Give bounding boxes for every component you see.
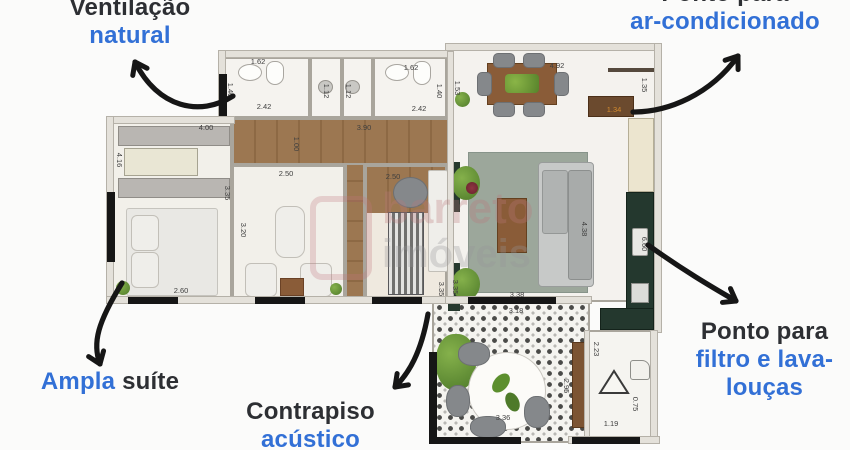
dimension-label: 1.35: [640, 78, 648, 93]
dimension-label: 3.36: [496, 414, 511, 422]
dimension-label: 2.50: [386, 173, 401, 181]
dimension-label: 6.60: [640, 237, 648, 252]
dimension-label: 1.12: [344, 84, 352, 99]
dimension-label: 2.42: [412, 105, 427, 113]
annotation-sink-point-line3: louças: [682, 374, 847, 402]
dimension-label: 1.34: [607, 106, 622, 114]
dimension-label: 1.53: [453, 81, 461, 96]
floor-plan-marketing-image: 1.621.402.421.121.121.622.421.404.003.90…: [0, 0, 850, 450]
annotation-screed-line2: acústico: [228, 426, 393, 450]
dimension-label: 4.16: [115, 153, 123, 168]
dimension-label: 3.38: [510, 291, 525, 299]
dimension-label: 1.00: [292, 137, 300, 152]
dimension-label: 1.12: [322, 84, 330, 99]
annotation-suite: Ampla suíte: [15, 368, 205, 396]
dimension-label: 2.50: [279, 170, 294, 178]
annotation-sink-point-line2: filtro e lava-: [682, 346, 847, 374]
annotation-ventilation-line1: Ventilação: [30, 0, 230, 22]
dimension-label: 2.42: [257, 103, 272, 111]
dimension-label: 1.62: [251, 58, 266, 66]
dimension-label: 2.23: [592, 342, 600, 357]
annotation-sink-point-line1: Ponto para: [682, 318, 847, 346]
annotation-ac: Ponto para ar-condicionado: [605, 0, 845, 36]
dimension-label: 3.20: [239, 223, 247, 238]
dimension-label: 1.40: [226, 83, 234, 98]
annotation-screed-line1: Contrapiso: [228, 398, 393, 426]
dimension-label: 1.62: [404, 64, 419, 72]
annotation-ac-line2: ar-condicionado: [605, 8, 845, 36]
annotation-sink-point: Ponto para filtro e lava- louças: [682, 318, 847, 402]
dimension-label: 3.90: [357, 124, 372, 132]
annotation-ventilation: Ventilação natural: [30, 0, 230, 50]
annotation-ventilation-line2: natural: [30, 22, 230, 50]
dimension-label: 1.40: [435, 84, 443, 99]
annotation-screed: Contrapiso acústico: [228, 398, 393, 450]
dimension-label: 0.75: [631, 397, 639, 412]
dimension-label: 2.60: [174, 287, 189, 295]
dimension-label: 4.38: [580, 222, 588, 237]
dimension-label: 3.35: [451, 280, 459, 295]
dimension-label: 2.95: [562, 379, 570, 394]
dimension-label: 4.00: [199, 124, 214, 132]
annotation-suite-word2: suíte: [122, 368, 179, 395]
dimension-label: 1.19: [604, 420, 619, 428]
dimension-label: 3.35: [437, 282, 445, 297]
annotation-ac-line1: Ponto para: [605, 0, 845, 8]
dimension-label: 3.35: [223, 186, 231, 201]
annotation-suite-word1: Ampla: [41, 368, 115, 395]
dimension-label: 3.18: [509, 307, 524, 315]
dimension-label: 4.92: [550, 62, 565, 70]
